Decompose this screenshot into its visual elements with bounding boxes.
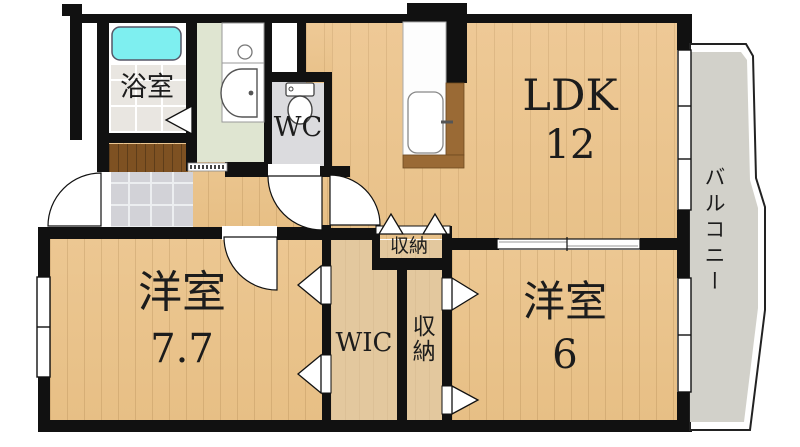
door-arc-wc [268, 176, 322, 230]
wic-front-2 [321, 355, 331, 393]
bathroom-door-marker [166, 106, 192, 134]
label-wic: WIC [331, 330, 397, 357]
floorplan: 浴室 WC LDK 12 洋室 7.7 洋室 6 WIC 収納 収納 バルコニー [0, 0, 800, 447]
label-bedroom2-size: 6 [465, 334, 665, 376]
door-arc-entrance [48, 173, 101, 226]
window-ldk [678, 50, 691, 210]
bathtub [112, 27, 181, 60]
storage-side-front-2 [442, 386, 452, 414]
washroom-threshold [188, 163, 227, 171]
counter-edge-right [446, 83, 464, 155]
storage-top-door-marker-2 [423, 214, 447, 234]
kitchen-counter [403, 22, 464, 168]
wic-front-1 [321, 266, 331, 304]
washbasin [221, 23, 264, 122]
kitchen-sink [408, 92, 443, 153]
counter-edge-bottom [403, 155, 464, 168]
label-bedroom1: 洋室 [82, 270, 282, 316]
label-balcony: バルコニー [703, 166, 725, 326]
storage-side-front-1 [442, 278, 452, 310]
storage-top-door-marker-1 [379, 214, 403, 234]
label-ldk: LDK [495, 74, 645, 119]
fixtures-layer [0, 0, 800, 447]
sliding-door-ldk-bedroom2 [497, 237, 640, 251]
storage-side-door-marker-2 [452, 386, 478, 414]
label-bedroom1-size: 7.7 [82, 328, 282, 370]
label-ldk-size: 12 [495, 124, 645, 166]
label-bathroom: 浴室 [107, 74, 187, 102]
label-storage-top: 収納 [376, 237, 442, 257]
label-storage-side: 収納 [409, 314, 433, 404]
wic-door-marker-1 [298, 266, 321, 304]
door-arc-ldk [330, 175, 380, 225]
label-bedroom2: 洋室 [465, 280, 665, 324]
label-wc: WC [270, 114, 326, 142]
wic-door-marker-2 [298, 355, 321, 393]
